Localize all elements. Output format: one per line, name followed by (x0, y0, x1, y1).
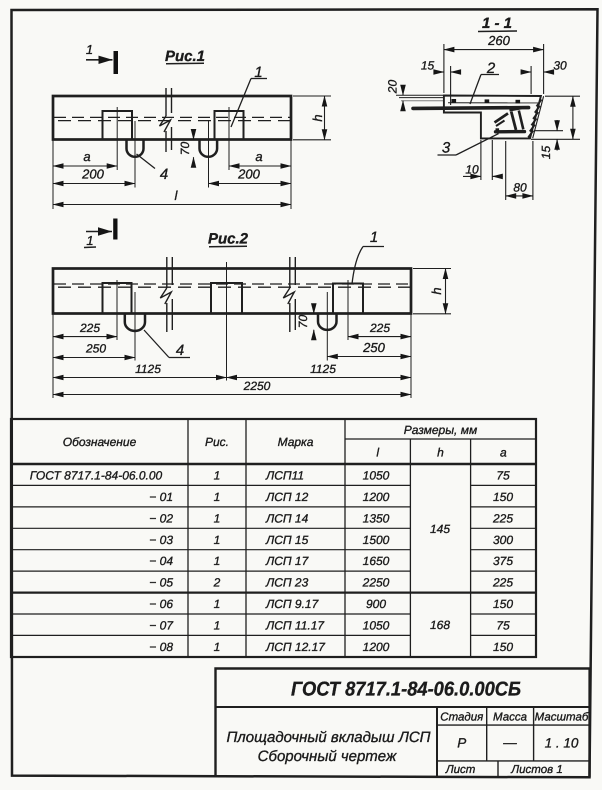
svg-text:Масса: Масса (493, 712, 527, 724)
svg-text:1 . 10: 1 . 10 (545, 736, 579, 751)
svg-text:1: 1 (86, 42, 93, 57)
svg-text:− 04: − 04 (149, 554, 173, 568)
svg-text:260: 260 (487, 33, 510, 48)
svg-text:ЛСП11: ЛСП11 (265, 469, 304, 483)
svg-text:ЛСП 9.17: ЛСП 9.17 (265, 597, 320, 611)
svg-text:150: 150 (493, 640, 513, 654)
svg-text:1: 1 (214, 533, 221, 547)
svg-text:Масштаб: Масштаб (535, 712, 589, 724)
svg-text:—: — (502, 735, 517, 750)
svg-text:h: h (310, 114, 325, 121)
svg-text:1650: 1650 (363, 554, 390, 568)
svg-text:1 - 1: 1 - 1 (482, 15, 512, 32)
svg-text:225: 225 (492, 511, 513, 525)
svg-text:Рис.: Рис. (205, 435, 229, 449)
svg-text:300: 300 (493, 533, 513, 547)
svg-text:a: a (500, 446, 507, 460)
svg-text:ЛСП 14: ЛСП 14 (265, 511, 309, 525)
svg-text:ЛСП 17: ЛСП 17 (265, 554, 310, 568)
svg-text:80: 80 (513, 181, 527, 195)
svg-text:a: a (255, 149, 262, 164)
svg-text:ЛСП 11.17: ЛСП 11.17 (265, 619, 325, 633)
svg-text:75: 75 (496, 619, 510, 633)
svg-text:1050: 1050 (363, 469, 390, 483)
svg-text:Обозначение: Обозначение (63, 435, 137, 449)
svg-text:3: 3 (442, 140, 451, 157)
svg-text:Листов 1: Листов 1 (510, 764, 562, 776)
svg-text:Лист: Лист (445, 764, 476, 776)
svg-text:− 02: − 02 (149, 511, 173, 525)
svg-text:2: 2 (213, 576, 221, 590)
svg-text:1125: 1125 (310, 362, 336, 376)
svg-text:70: 70 (296, 315, 310, 329)
svg-text:− 01: − 01 (149, 490, 173, 504)
svg-text:− 05: − 05 (149, 576, 173, 590)
svg-text:168: 168 (430, 618, 450, 632)
svg-text:ЛСП 23: ЛСП 23 (265, 576, 309, 590)
svg-text:2250: 2250 (362, 576, 390, 590)
svg-text:15: 15 (539, 146, 553, 160)
svg-text:2250: 2250 (243, 379, 271, 393)
svg-text:1: 1 (214, 511, 221, 525)
svg-text:1: 1 (370, 229, 378, 246)
svg-text:1: 1 (214, 554, 221, 568)
svg-text:h: h (429, 287, 444, 294)
svg-text:1200: 1200 (363, 490, 390, 504)
svg-text:Сборочный чертеж: Сборочный чертеж (258, 748, 397, 765)
svg-text:70: 70 (178, 142, 192, 156)
svg-text:− 03: − 03 (149, 533, 173, 547)
svg-text:200: 200 (237, 167, 260, 182)
svg-text:1: 1 (214, 597, 221, 611)
svg-text:Стадия: Стадия (440, 712, 483, 724)
svg-text:200: 200 (81, 167, 104, 182)
svg-text:h: h (437, 446, 444, 460)
svg-text:15: 15 (421, 59, 435, 73)
svg-text:l: l (376, 446, 379, 460)
svg-text:225: 225 (79, 321, 100, 335)
svg-text:250: 250 (362, 340, 385, 355)
svg-text:1: 1 (214, 640, 221, 654)
svg-text:ЛСП 12.17: ЛСП 12.17 (265, 640, 326, 654)
svg-text:Марка: Марка (278, 435, 314, 449)
svg-text:ГОСТ 8717.1-84-06.0.00СБ: ГОСТ 8717.1-84-06.0.00СБ (291, 679, 521, 701)
svg-text:1125: 1125 (135, 362, 161, 376)
svg-text:1: 1 (214, 469, 221, 483)
svg-text:ЛСП 12: ЛСП 12 (265, 490, 309, 504)
svg-text:1500: 1500 (363, 533, 390, 547)
svg-text:4: 4 (176, 342, 184, 359)
svg-text:900: 900 (366, 597, 386, 611)
svg-text:225: 225 (492, 576, 513, 590)
svg-text:375: 375 (493, 554, 513, 568)
svg-text:75: 75 (496, 469, 510, 483)
svg-text:ГОСТ 8717.1-84-06.0.00: ГОСТ 8717.1-84-06.0.00 (30, 469, 163, 483)
svg-text:150: 150 (493, 490, 513, 504)
svg-text:Рис.2: Рис.2 (208, 231, 249, 248)
svg-text:1: 1 (214, 619, 221, 633)
svg-text:250: 250 (85, 342, 106, 356)
svg-text:1200: 1200 (363, 640, 390, 654)
svg-text:30: 30 (553, 59, 567, 73)
svg-text:− 07: − 07 (149, 619, 174, 633)
svg-text:20: 20 (386, 80, 400, 95)
svg-text:Рис.1: Рис.1 (165, 48, 205, 65)
svg-text:4: 4 (160, 166, 168, 183)
svg-text:− 06: − 06 (149, 597, 173, 611)
svg-text:225: 225 (369, 321, 390, 335)
svg-text:10: 10 (465, 163, 479, 177)
svg-text:1050: 1050 (363, 619, 390, 633)
svg-text:a: a (83, 149, 90, 164)
svg-text:1: 1 (86, 233, 93, 248)
svg-text:Площадочный вкладыш ЛСП: Площадочный вкладыш ЛСП (226, 729, 430, 746)
svg-text:Размеры, мм: Размеры, мм (404, 423, 477, 437)
svg-text:150: 150 (493, 597, 513, 611)
svg-text:ЛСП 15: ЛСП 15 (265, 533, 309, 547)
svg-text:Р: Р (457, 736, 466, 751)
svg-text:1350: 1350 (363, 511, 390, 525)
svg-text:− 08: − 08 (149, 640, 173, 654)
svg-text:145: 145 (430, 522, 450, 536)
svg-text:1: 1 (214, 490, 221, 504)
